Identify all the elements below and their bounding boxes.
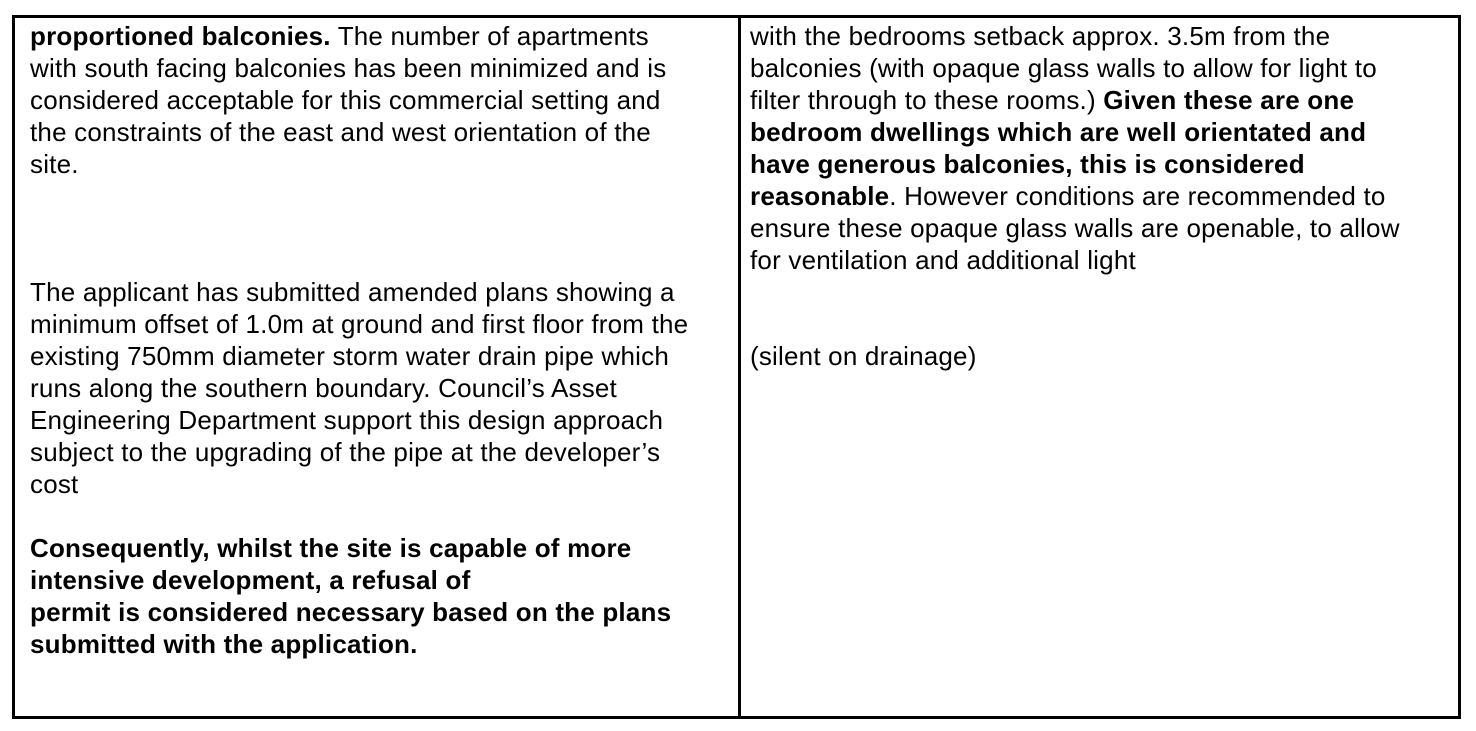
text-line: have generous balconies, this is conside… (750, 148, 1450, 180)
text-run: with the bedrooms setback approx. 3.5m f… (750, 21, 1330, 51)
text-run: minimum offset of 1.0m at ground and fir… (30, 309, 688, 339)
document-page: proportioned balconies. The number of ap… (0, 0, 1476, 731)
text-line: for ventilation and additional light (750, 244, 1450, 276)
text-line: reasonable. However conditions are recom… (750, 180, 1450, 212)
text-line: minimum offset of 1.0m at ground and fir… (30, 308, 728, 340)
text-line: the constraints of the east and west ori… (30, 116, 728, 148)
bold-text-run: submitted with the application. (30, 629, 418, 659)
bold-text-run: reasonable (750, 181, 889, 211)
text-run: The applicant has submitted amended plan… (30, 277, 675, 307)
text-line: bedroom dwellings which are well orienta… (750, 116, 1450, 148)
text-run: considered acceptable for this commercia… (30, 85, 661, 115)
text-run: Engineering Department support this desi… (30, 405, 663, 435)
text-run: with south facing balconies has been min… (30, 53, 666, 83)
bold-text-run: have generous balconies, this is conside… (750, 149, 1305, 179)
text-run: filter through to these rooms.) (750, 85, 1103, 115)
text-run: ensure these opaque glass walls are open… (750, 213, 1400, 243)
text-line (30, 500, 728, 532)
text-line: permit is considered necessary based on … (30, 596, 728, 628)
text-run: balconies (with opaque glass walls to al… (750, 53, 1377, 83)
bold-text-run: intensive development, a refusal of (30, 565, 470, 595)
text-run: the constraints of the east and west ori… (30, 117, 651, 147)
text-line: considered acceptable for this commercia… (30, 84, 728, 116)
text-line: cost (30, 468, 728, 500)
text-line: with the bedrooms setback approx. 3.5m f… (750, 20, 1450, 52)
bold-text-run: Given these are one (1103, 85, 1354, 115)
table-cell-response: with the bedrooms setback approx. 3.5m f… (741, 18, 1458, 716)
text-run: site. (30, 149, 79, 179)
text-line: subject to the upgrading of the pipe at … (30, 436, 728, 468)
text-line: The applicant has submitted amended plan… (30, 276, 728, 308)
text-run: for ventilation and additional light (750, 245, 1136, 275)
text-line: submitted with the application. (30, 628, 728, 660)
text-run: cost (30, 469, 78, 499)
bold-text-run: bedroom dwellings which are well orienta… (750, 117, 1366, 147)
text-line: intensive development, a refusal of (30, 564, 728, 596)
text-line (750, 308, 1450, 340)
text-line: Engineering Department support this desi… (30, 404, 728, 436)
bold-text-run: Consequently, whilst the site is capable… (30, 533, 631, 563)
text-run: runs along the southern boundary. Counci… (30, 373, 617, 403)
text-run: . However conditions are recommended to (889, 181, 1385, 211)
text-run: subject to the upgrading of the pipe at … (30, 437, 660, 467)
text-run: existing 750mm diameter storm water drai… (30, 341, 669, 371)
text-line: balconies (with opaque glass walls to al… (750, 52, 1450, 84)
text-line: site. (30, 148, 728, 180)
assessment-table: proportioned balconies. The number of ap… (12, 15, 1461, 719)
text-line (750, 276, 1450, 308)
bold-text-run: proportioned balconies. (30, 21, 331, 51)
text-line (30, 212, 728, 244)
text-line: runs along the southern boundary. Counci… (30, 372, 728, 404)
text-line: ensure these opaque glass walls are open… (750, 212, 1450, 244)
table-cell-assessment: proportioned balconies. The number of ap… (15, 18, 741, 716)
text-line: with south facing balconies has been min… (30, 52, 728, 84)
text-line: existing 750mm diameter storm water drai… (30, 340, 728, 372)
text-line: (silent on drainage) (750, 340, 1450, 372)
text-run: The number of apartments (331, 21, 649, 51)
text-line: filter through to these rooms.) Given th… (750, 84, 1450, 116)
bold-text-run: permit is considered necessary based on … (30, 597, 671, 627)
text-run: (silent on drainage) (750, 341, 977, 371)
text-line: Consequently, whilst the site is capable… (30, 532, 728, 564)
text-line (30, 180, 728, 212)
text-line (30, 244, 728, 276)
text-line: proportioned balconies. The number of ap… (30, 20, 728, 52)
